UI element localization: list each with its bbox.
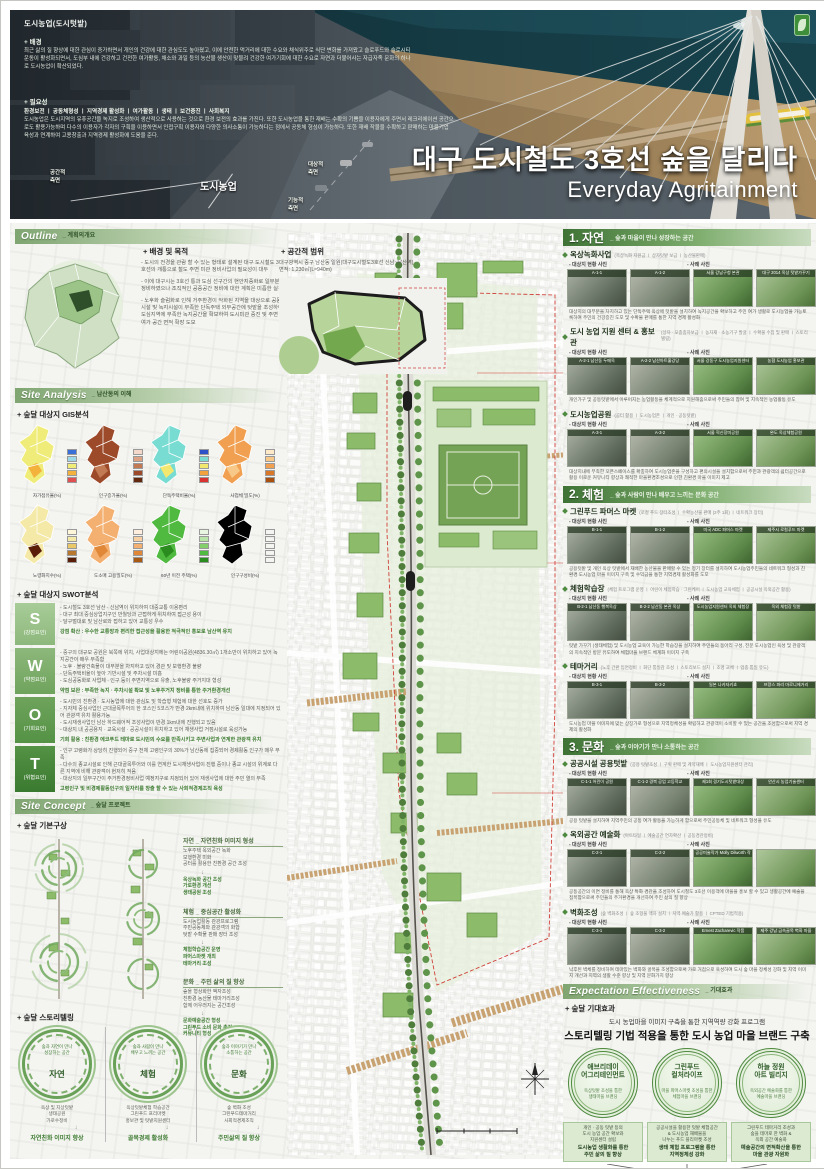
- swot-letter: T: [30, 757, 40, 773]
- program-sub-block: 옥외공간 예술화 (아트타일 ㅣ 예술공간 연차확산 ㅣ 공동경관정비) - 대…: [563, 829, 811, 901]
- site-photos-label: - 대상지 현황 사진: [569, 770, 687, 777]
- photo-thumbnail: 서울 강남구청 본관: [693, 269, 753, 307]
- swot-label: + 숲달 대상지 SWOT분석: [17, 589, 281, 600]
- concept-text-blocks: 자연 _ 자연친화 이미지 형성 노후주택 옥외공간 녹화 보행환경 미화 공터…: [183, 836, 283, 1048]
- gis-map-name: 단독주택비율(%): [147, 493, 211, 499]
- storytelling-result: 자연친화 이미지 향상: [15, 1133, 99, 1142]
- sub-keywords: (아트타일 ㅣ 예술공간 연차확산 ㅣ 공동경관정비): [623, 833, 713, 839]
- site-photos-label: - 대상지 현황 사진: [569, 421, 687, 428]
- concept-heading-sub: _ 숲달 프로젝트: [91, 800, 131, 809]
- expectation-line1: 도시 농업마을 이미지 구축을 통한 지역역량 강화 프로그램: [563, 1016, 811, 1026]
- swot-body: - 인구 고령화가 상당히 진행되어 중구 전체 고령인구의 30%가 남산동에…: [55, 746, 281, 792]
- concept-plan-sketch-1: [19, 834, 99, 1004]
- sub-keywords: (상자 · 모종종자보급 ㅣ 농자재 · 소농기구 발굴 ㅣ 수확물 수집 및 …: [661, 330, 811, 342]
- swot-letter-box: T (위협요인): [15, 746, 55, 792]
- expectation-box: 개인 · 공동 텃밭 등의 도시 농업 공간 확보와 지원센터 설립 도시농업 …: [563, 1122, 643, 1162]
- site-photos-label: - 대상지 현황 사진: [569, 349, 687, 356]
- arrow-down-icon: [201, 870, 283, 876]
- expectation-circle-name: 그린푸드 컬처라이프: [658, 1064, 716, 1081]
- scope-block: + 공간적 범위 대구광역시 중구 남산동 일원(대구도시철도3호선 신남~남산…: [279, 246, 457, 379]
- swot-letter-box: W (약점요인): [15, 648, 55, 694]
- expectation-circle-sub: 옥상텃밭 조성을 통한 생태마을 브랜딩: [577, 1088, 629, 1099]
- swot-summary: 강점 확산 : 우수한 교통망과 편리한 접근성을 활용한 적극적인 홍보로 남…: [60, 628, 232, 635]
- hero-necessity-text: 도시농업은 도시지역의 유휴공간을 녹지로 조성하여 생산적으로 사용하는 것으…: [24, 117, 454, 140]
- site-photos-label: - 대상지 현황 사진: [569, 518, 687, 525]
- photo-thumbnail: 미국 ADC 파머스 마켓: [693, 526, 753, 564]
- sub-keywords: (노후 간판 입면정비 ㅣ 화단 통일감 조성 ㅣ 스토리보드 설치 ㅣ 조명 …: [601, 665, 769, 671]
- diamond-bullet-icon: [562, 909, 568, 915]
- case-photos-label: - 사례 사진: [687, 518, 710, 525]
- analysis-heading: Site Analysis: [21, 390, 87, 401]
- section-3-name: 문화: [582, 738, 604, 755]
- gis-map: 인구구성비(%): [213, 503, 277, 579]
- expectation-result: 생태 체험 프로그램을 통한 지역정체성 강화: [650, 1145, 724, 1159]
- swot-korean-label: (약점요인): [24, 676, 47, 683]
- expectation-circle-name: 하늘 정원 아트 빌리지: [742, 1064, 800, 1081]
- swot-letter-box: O (기회요인): [15, 697, 55, 743]
- section-2-tagline: _ 숲과 사람이 만나 배우고 느끼는 문화 공간: [610, 490, 719, 499]
- swot-analysis: S (강점요인) - 도시철도 3호선 남산 · 신남역이 위치하여 대중교통 …: [15, 603, 281, 795]
- diamond-bullet-icon: [562, 832, 568, 838]
- photo-thumbnail: A-2-2 남산아트홀강당: [630, 357, 690, 395]
- concept-block: 자연 _ 자연친화 이미지 형성 노후주택 옥외공간 녹화 보행환경 미화 공터…: [183, 836, 283, 898]
- diamond-bullet-icon: [562, 663, 568, 669]
- storytelling-cell: 숲과 사람이 만나 배우고 느끼는 공간 체험 옥상텃밭체험 학습공간 그린푸드…: [105, 1027, 190, 1142]
- photo-thumbnail: B-1-2: [630, 526, 690, 564]
- sub-title: 도시 농업 지원 센터 & 홍보관: [570, 326, 658, 348]
- expectation-box: 공공시설을 활용한 텃밭 체험공간 & 도시농업 재배물을 나누는 푸드 플리마…: [647, 1122, 727, 1162]
- gis-map: 인구증가율(%): [81, 423, 145, 499]
- sub-keywords: (공터 활용 ㅣ 도시농업존 ㅣ 개인 · 공동텃밭): [614, 413, 696, 419]
- hero-necessity-keywords: 환경보전 ㅣ 공동체형성 ㅣ 지역경제 활성화 ㅣ 여가활동 ㅣ 생태 ㅣ 보건…: [24, 107, 229, 115]
- gis-legend: [133, 449, 143, 484]
- station-marker: [406, 571, 415, 591]
- case-photos-label: - 사례 사진: [687, 673, 710, 680]
- gis-map-grid: 자가점유율(%) 인구증가율(%): [15, 423, 281, 583]
- gis-choropleth-art: [15, 423, 59, 487]
- photo-thumbnail: 일본 나카자키쵸: [693, 681, 753, 719]
- gis-legend: [133, 529, 143, 564]
- expectation-heading: Expectation Effectiveness: [569, 986, 700, 997]
- sub-keywords: (공용 텃밭조성 ㅣ 구획 판매 및 계약재배 ㅣ 도시농업지원센터 관리): [630, 762, 753, 768]
- scope-line2: 면적: 1,230㎡(L≈940m): [279, 267, 457, 274]
- case-photos-label: - 사례 사진: [687, 595, 710, 602]
- hero-overlay-title: 도시농업(도시텃밭): [24, 18, 87, 29]
- site-scope-map: [279, 278, 447, 374]
- concept-diagram-area: 자연 _ 자연친화 이미지 형성 노후주택 옥외공간 녹화 보행환경 미화 공터…: [15, 834, 281, 1006]
- program-sub-block: 도시농업공원 (공터 활용 ㅣ 도시농업존 ㅣ 개인 · 공동텃밭) - 대상지…: [563, 409, 811, 481]
- gis-choropleth-art: [15, 503, 59, 567]
- diagram-center-label: 도시농업: [200, 178, 237, 193]
- photo-thumbnail: 도시농업지원센터 옥외 체험장: [693, 603, 753, 641]
- photo-row: C-3-1 C-3-2 Ernest Zacharevic 작품 제주 강남 금…: [567, 927, 811, 965]
- program-sub-block: 옥상녹화사업 (옥상녹화 지원금 ㅣ 상자텃밭 보급 ㅣ 농산물판매) - 대상…: [563, 249, 811, 321]
- hero-background-text: 최근 삶의 질 향상에 대한 관심이 증가하면서 개인의 건강에 대한 관심도도…: [24, 48, 414, 71]
- leaf-logo-badge: [794, 14, 810, 36]
- swot-row: W (약점요인) - 중구의 대규모 공원은 북쪽에 위치, 사업대상지에는 어…: [15, 648, 281, 694]
- poster-title: 대구 도시철도 3호선 숲을 달리다 Everyday Agritainment: [412, 138, 798, 203]
- purpose-label: + 배경 및 목적: [143, 246, 283, 257]
- expectation-circle: 그린푸드 컬처라이프 마을 파머스마켓 조성을 통한 체험마을 브랜딩: [652, 1048, 722, 1118]
- gis-legend: [67, 449, 77, 484]
- sub-title: 벽화조성: [570, 907, 598, 918]
- sub-title: 공공시설 공용텃밭: [570, 758, 627, 769]
- photo-row: B-3-1 B-3-2 일본 나카자키쵸 프랑스 파리 마로니에거리: [567, 681, 811, 719]
- storytelling-circle: 숲과 이야기가 만나 소통하는 공간 문화: [204, 1029, 274, 1099]
- section-3-subs: 공공시설 공용텃밭 (공용 텃밭조성 ㅣ 구획 판매 및 계약재배 ㅣ 도시농업…: [563, 758, 811, 979]
- storytelling-tagline: 숲과 이야기가 만나 소통하는 공간: [211, 1044, 267, 1055]
- expectation-cell: 그린푸드 컬처라이프 마을 파머스마켓 조성을 통한 체험마을 브랜딩 공공시설…: [647, 1048, 727, 1162]
- gis-legend: [199, 529, 209, 564]
- purpose-item: - 도시의 전경을 관람 할 수 있는 형태로 설계된 대구 도시철도 3호선의…: [141, 260, 283, 275]
- gis-map: 60년 이전 주택(%): [147, 503, 211, 579]
- gis-choropleth-art: [81, 503, 125, 567]
- diamond-bullet-icon: [562, 335, 568, 341]
- swot-summary: 약점 보완 : 부족한 녹지 · 주차시설 확보 및 노후주거지 정비를 통한 …: [60, 687, 281, 694]
- expectation-circles: 애브리데이 어그리테인먼트 옥상텃밭 조성을 통한 생태마을 브랜딩 개인 · …: [563, 1048, 811, 1162]
- gis-legend: [199, 449, 209, 484]
- gis-choropleth-art: [213, 503, 257, 567]
- section-1-name: 자연: [582, 229, 604, 246]
- program-sub-block: 벽화조성 (숲 벽화조성 ㅣ 숲 조형물 액자 설치 ㅣ 지역 예술가 활용 ㅣ…: [563, 907, 811, 979]
- diamond-bullet-icon: [562, 761, 568, 767]
- photo-thumbnail: C-1-2 경북 공업 고등학교: [630, 778, 690, 816]
- concept-section-header: Site Concept _ 숲달 프로젝트: [15, 799, 281, 814]
- swot-summary: 고령인구 및 비경제활동인구의 일자리를 창출 할 수 있는 사회적경제조직 육…: [60, 785, 281, 792]
- arrow-down-icon: [144, 1125, 190, 1131]
- diamond-bullet-icon: [562, 586, 568, 592]
- section-2-number: 2.: [569, 487, 579, 501]
- expectation-circle: 하늘 정원 아트 빌리지 옥외공간 예술화를 통한 예술마을 브랜딩: [736, 1048, 806, 1118]
- gis-map: 사업체 밀도(%): [213, 423, 277, 499]
- section-2-name: 체험: [582, 486, 604, 503]
- storytelling-name: 체험: [116, 1068, 180, 1080]
- gis-map-name: 자가점유율(%): [15, 493, 79, 499]
- sub-title: 옥상녹화사업: [570, 249, 611, 260]
- gis-map-name: 노령화지수(%): [15, 573, 79, 579]
- right-column: 1. 자연 _ 숲과 마을이 만나 성장하는 공간 옥상녹화사업 (옥상녹화 지…: [563, 229, 811, 1169]
- hero-background-label: + 배경: [24, 36, 42, 46]
- poster-title-english: Everyday Agritainment: [412, 177, 798, 203]
- photo-thumbnail: 서울 혁신장미공원: [693, 429, 753, 467]
- photo-thumbnail: B-3-2: [630, 681, 690, 719]
- swot-row: S (강점요인) - 도시철도 3호선 남산 · 신남역이 위치하여 대중교통 …: [15, 603, 281, 645]
- sub-keywords: (로컬 푸드 장터조성 ㅣ 수확농산물 판매 (2주 1회) ㅣ 네트워크 장터…: [639, 510, 763, 516]
- expectation-box: 그린푸드 테마거리 조성과 숲을 테마로 한 벽화 & 옥외 공간 예술화 예술…: [731, 1122, 811, 1162]
- concept-results: 체험학습공간 운영 파머스마켓 개최 테마거리 조성: [183, 948, 283, 968]
- photo-thumbnail: 완도 옥상체험공원: [756, 429, 816, 467]
- arrow-down-icon: [53, 1125, 99, 1131]
- diamond-bullet-icon: [562, 411, 568, 417]
- photo-thumbnail: 안산시 농업기술센터: [756, 778, 816, 816]
- photo-thumbnail: A-2-1 남산동 두메옥: [567, 357, 627, 395]
- diagram-function-label: 기능적 측면: [288, 196, 303, 212]
- swot-row: O (기회요인) - 도시민의 친환경 · 도시농업에 대한 관심도 및 학습형…: [15, 697, 281, 743]
- section-3-number: 3.: [569, 740, 579, 754]
- photo-row: C-2-1 C-2-2 공공미술작가 Molly Dilworth 작품: [567, 849, 811, 887]
- photo-thumbnail: [756, 849, 816, 887]
- analysis-section-header: Site Analysis _ 남산동의 이해: [15, 388, 281, 403]
- photo-thumbnail: C-2-2: [630, 849, 690, 887]
- expectation-cell: 하늘 정원 아트 빌리지 옥외공간 예술화를 통한 예술마을 브랜딩 그린푸드 …: [731, 1048, 811, 1162]
- gis-map: 도소매 고용밀도(%): [81, 503, 145, 579]
- gis-choropleth-art: [147, 503, 191, 567]
- photo-thumbnail: C-3-1: [567, 927, 627, 965]
- site-photos-label: - 대상지 현황 사진: [569, 261, 687, 268]
- swot-letter-box: S (강점요인): [15, 603, 55, 645]
- concept-label: + 숲달 기본구상: [17, 820, 281, 831]
- case-photos-label: - 사례 사진: [687, 841, 710, 848]
- sports-field: [439, 445, 527, 525]
- sub-caption: 공용텃밭 및 개인 옥상 텃밭에서 재배한 농산물을 판매할 수 있는 정기 장…: [569, 566, 809, 578]
- swot-letter: S: [30, 612, 41, 628]
- section-2-header: 2. 체험 _ 숲과 사람이 만나 배우고 느끼는 문화 공간: [563, 486, 811, 503]
- program-sub-block: 그린푸드 파머스 마켓 (로컬 푸드 장터조성 ㅣ 수확농산물 판매 (2주 1…: [563, 506, 811, 578]
- sub-keywords: (체험 프로그램 운영 ㅣ 어린이 체험학습 · 그린케어 ㅣ 도시농업 교육체…: [608, 587, 791, 593]
- expectation-result: 예술공간의 면적확산을 통한 마을 관광 자원화: [734, 1145, 808, 1159]
- storytelling-cell: 숲과 자연이 만나 성장하는 공간 자연 옥상 및 지상텃밭 생태공원 가로수정…: [15, 1027, 99, 1142]
- storytelling-circles: 숲과 자연이 만나 성장하는 공간 자연 옥상 및 지상텃밭 생태공원 가로수정…: [15, 1027, 281, 1142]
- case-photos-label: - 사례 사진: [687, 919, 710, 926]
- gis-map: 자가점유율(%): [15, 423, 79, 499]
- swot-letter: W: [27, 659, 42, 675]
- swot-summary: 기회 활용 : 친환경 에코푸드 테마로 도시민의 수요를 만족시키고 주변사업…: [60, 736, 281, 743]
- storytelling-result: 골목경제 활성화: [106, 1133, 190, 1142]
- sub-caption: 텃밭 가꾸기 (생태체험) 및 도시농업 교육이 가능한 학습장을 설치하여 주…: [569, 643, 809, 655]
- swot-korean-label: (위협요인): [24, 774, 47, 781]
- swot-korean-label: (기회요인): [24, 725, 47, 732]
- site-photos-label: - 대상지 현황 사진: [569, 919, 687, 926]
- photo-thumbnail: B-3-1: [567, 681, 627, 719]
- outline-content: + 배경 및 목적 - 도시의 전경을 관람 할 수 있는 형태로 설계된 대구…: [15, 246, 281, 384]
- convergence-lines: [597, 1164, 777, 1169]
- sub-title: 그린푸드 파머스 마켓: [570, 506, 636, 517]
- photo-row: A-3-1 A-3-2 서울 혁신장미공원 완도 옥상체험공원: [567, 429, 811, 467]
- program-sub-block: 체험학습장 (체험 프로그램 운영 ㅣ 어린이 체험학습 · 그린케어 ㅣ 도시…: [563, 583, 811, 655]
- gis-choropleth-art: [81, 423, 125, 487]
- storytelling-circle: 숲과 자연이 만나 성장하는 공간 자연: [22, 1029, 92, 1099]
- swot-body: - 도시민의 친환경 · 도시농업에 대한 관심도 및 학습형 체험에 대한 선…: [55, 697, 281, 743]
- sub-title: 테마거리: [570, 661, 598, 672]
- photo-thumbnail: A-1-2: [630, 269, 690, 307]
- hero-necessity-label: + 필요성: [24, 96, 48, 106]
- photo-thumbnail: C-3-2: [630, 927, 690, 965]
- expectation-circle-sub: 마을 파머스마켓 조성을 통한 체험마을 브랜딩: [661, 1088, 713, 1099]
- sub-keywords: (숲 벽화조성 ㅣ 숲 조형물 액자 설치 ㅣ 지역 예술가 활용 ㅣ CPTE…: [601, 911, 744, 917]
- gis-map-name: 인구구성비(%): [213, 573, 277, 579]
- photo-thumbnail: 제주 강남 금속골목 벽화 마을: [756, 927, 816, 965]
- photo-thumbnail: 제1회 경기도시텃밭대상: [693, 778, 753, 816]
- photo-thumbnail: A-3-1: [567, 429, 627, 467]
- section-1-number: 1.: [569, 231, 579, 245]
- sub-caption: 공용 텃밭을 설치하여 지역주민의 공동 여가 활동을 가능하게 함으로써 주민…: [569, 818, 809, 824]
- storytelling-tagline: 숲과 자연이 만나 성장하는 공간: [29, 1044, 85, 1055]
- arrow-down-icon: [201, 940, 283, 946]
- photo-thumbnail: 농협 도시농업 홍보관: [756, 357, 816, 395]
- poster-title-korean: 대구 도시철도 3호선 숲을 달리다: [412, 138, 798, 177]
- site-photos-label: - 대상지 현황 사진: [569, 841, 687, 848]
- sub-caption: 대상지내에 부족한 오픈스페이스를 확충하여 도시농업존을 구성하고 편의시설을…: [569, 469, 809, 481]
- photo-thumbnail: 프랑스 파리 마로니에거리: [756, 681, 816, 719]
- diagram-target-label: 대상적 측면: [308, 160, 323, 176]
- daegu-districts-map: [15, 254, 137, 372]
- program-sub-block: 테마거리 (노후 간판 입면정비 ㅣ 화단 통일감 조성 ㅣ 스토리보드 설치 …: [563, 661, 811, 733]
- arrow-down-icon: [235, 1125, 281, 1131]
- storytelling-result: 주민삶의 질 향상: [197, 1133, 281, 1142]
- photo-row: B-1-1 B-1-2 미국 ADC 파머스 마켓 제주시 로컬푸드 마켓: [567, 526, 811, 564]
- photo-thumbnail: 대구 2014 옥상 텃밭가꾸기: [756, 269, 816, 307]
- scope-label: + 공간적 범위: [281, 246, 457, 257]
- concept-title: 자연 _ 자연친화 이미지 형성: [183, 836, 283, 847]
- sub-caption: 공동공간의 이면 정비를 통해 옥상 특화 경관을 조성하여 도시철도 3호선 …: [569, 889, 809, 901]
- expectation-section-header: Expectation Effectiveness _ 기대효과: [563, 984, 811, 999]
- swot-korean-label: (강점요인): [24, 629, 47, 636]
- section-3-header: 3. 문화 _ 숲과 이야기가 만나 소통하는 공간: [563, 738, 811, 755]
- sub-caption: 대상지의 대부분을 차지하고 있는 단독주택 옥상에 텃밭을 설치하여 녹지공간…: [569, 309, 809, 321]
- storytelling-circle: 숲과 사람이 만나 배우고 느끼는 공간 체험: [113, 1029, 183, 1099]
- expectation-cell: 애브리데이 어그리테인먼트 옥상텃밭 조성을 통한 생태마을 브랜딩 개인 · …: [563, 1048, 643, 1162]
- photo-thumbnail: 공공미술작가 Molly Dilworth 작품: [693, 849, 753, 887]
- gis-label: + 숲달 대상지 GIS분석: [17, 409, 281, 420]
- section-1-header: 1. 자연 _ 숲과 마을이 만나 성장하는 공간: [563, 229, 811, 246]
- section-3-tagline: _ 숲과 이야기가 만나 소통하는 공간: [610, 742, 699, 751]
- photo-row: B-2-1 남산동 행복옥상 B-2-2 남산동 본관 옥상 도시농업지원센터 …: [567, 603, 811, 641]
- swot-row: T (위협요인) - 인구 고령화가 상당히 진행되어 중구 전체 고령인구의 …: [15, 746, 281, 792]
- gis-map-name: 사업체 밀도(%): [213, 493, 277, 499]
- gis-choropleth-art: [213, 423, 257, 487]
- storytelling-name: 자연: [25, 1068, 89, 1080]
- gis-legend: [67, 529, 77, 564]
- purpose-item: - 노후화 슬럼화로 인해 거주환경이 악화된 지역을 대상으로 공동시설 및 …: [141, 298, 283, 328]
- left-column: Outline _ 계획의개요 + 배경 및 목적 - 도시의 전경을 관람 할…: [15, 229, 281, 1142]
- analysis-heading-sub: _ 남산동의 이해: [92, 389, 132, 398]
- sub-keywords: (옥상녹화 지원금 ㅣ 상자텃밭 보급 ㅣ 농산물판매): [614, 253, 705, 259]
- photo-thumbnail: C-1-1 어린이 공원: [567, 778, 627, 816]
- site-photos-label: - 대상지 현황 사진: [569, 595, 687, 602]
- sub-title: 체험학습장: [570, 583, 605, 594]
- expectation-detail: 개인 · 공동 텃밭 등의 도시 농업 공간 확보와 지원센터 설립: [566, 1125, 640, 1143]
- gis-map-name: 60년 이전 주택(%): [147, 573, 211, 579]
- storytelling-tagline: 숲과 사람이 만나 배우고 느끼는 공간: [120, 1044, 176, 1055]
- gis-legend: [265, 529, 275, 564]
- gis-map: 단독주택비율(%): [147, 423, 211, 499]
- program-sub-block: 도시 농업 지원 센터 & 홍보관 (상자 · 모종종자보급 ㅣ 농자재 · 소…: [563, 326, 811, 403]
- sub-caption: 낙후된 벽체를 정비하여 테마있는 벽화와 골목을 조성함으로써 가로 거점으로…: [569, 967, 809, 979]
- sub-title: 도시농업공원: [570, 409, 611, 420]
- expectation-heading-sub: _ 기대효과: [705, 985, 732, 994]
- poster-board: 도시농업(도시텃밭) + 배경 최근 삶의 질 향상에 대한 관심이 증가하면서…: [0, 0, 824, 1169]
- expectation-detail: 그린푸드 테마거리 조성과 숲을 테마로 한 벽화 & 옥외 공간 예술화: [734, 1125, 808, 1143]
- photo-row: C-1-1 어린이 공원 C-1-2 경북 공업 고등학교 제1회 경기도시텃밭…: [567, 778, 811, 816]
- site-photos-label: - 대상지 현황 사진: [569, 673, 687, 680]
- gis-map-name: 도소매 고용밀도(%): [81, 573, 145, 579]
- gis-choropleth-art: [147, 423, 191, 487]
- gis-map: 노령화지수(%): [15, 503, 79, 579]
- photo-row: A-2-1 남산동 두메옥 A-2-2 남산아트홀강당 서울 강동구 도시농업지…: [567, 357, 811, 395]
- swot-body: - 도시철도 3호선 남산 · 신남역이 위치하여 대중교통 이용편리 - 대구…: [55, 603, 232, 645]
- concept-title: 체험 _ 중심공간 활성화: [183, 907, 283, 918]
- sub-caption: 도시농업 마을 이미지에 맞는 상징가로 형성으로 지역정체성을 확립하고 관광…: [569, 721, 809, 733]
- photo-thumbnail: 제주시 로컬푸드 마켓: [756, 526, 816, 564]
- outline-heading: Outline: [21, 231, 58, 242]
- concept-items: 도시농업활동 관광프로그램 주민공동체와 관광객의 화합 텃밭 수확물 판매 장…: [183, 920, 283, 940]
- storytelling-items: 옥상텃밭체험 학습공간 그린푸드 프리마켓 홍보관 및 텃밭지원센터: [106, 1105, 190, 1124]
- storytelling-items: 숲 벽화 조성 그린푸드테마거리 사회적경제조직: [197, 1105, 281, 1124]
- photo-thumbnail: B-2-1 남산동 행복옥상: [567, 603, 627, 641]
- case-photos-label: - 사례 사진: [687, 261, 710, 268]
- photo-thumbnail: C-2-1: [567, 849, 627, 887]
- urban-farming-diagram: 공간적 측면 도시농업 대상적 측면 기능적 측면: [50, 160, 410, 212]
- gis-legend: [265, 449, 275, 484]
- concept-plan-sketch-2: [103, 834, 183, 1004]
- photo-thumbnail: 옥외 체험장 텃밭: [756, 603, 816, 641]
- photo-thumbnail: A-3-2: [630, 429, 690, 467]
- case-photos-label: - 사례 사진: [687, 421, 710, 428]
- diamond-bullet-icon: [562, 509, 568, 515]
- section-1-tagline: _ 숲과 마을이 만나 성장하는 공간: [610, 233, 693, 242]
- station-marker: [403, 391, 412, 411]
- concept-results: 옥상녹화 공간 조성 가로환경 개선 생태공원 조성: [183, 878, 283, 898]
- storytelling-items: 옥상 및 지상텃밭 생태공원 가로수정비: [15, 1105, 99, 1124]
- expectation-label: + 숲달 기대효과: [565, 1003, 811, 1014]
- hero-photo: 도시농업(도시텃밭) + 배경 최근 삶의 질 향상에 대한 관심이 증가하면서…: [10, 10, 816, 219]
- case-photos-label: - 사례 사진: [687, 349, 710, 356]
- expectation-result: 도시농업 생활화를 통한 주민 삶의 질 향상: [566, 1145, 640, 1159]
- concept-items: 노후주택 옥외공간 녹화 보행환경 미화 공터를 활용한 친환경 공간 조성: [183, 849, 283, 869]
- expectation-line2: 스토리텔링 기법 적용을 통한 도시 농업 마을 브랜드 구축: [563, 1028, 811, 1043]
- sub-caption: 개인가구 및 공동텃밭에서 이루어지는 농업활동을 체계적으로 지원해줌으로써 …: [569, 397, 809, 403]
- expectation-detail: 공공시설을 활용한 텃밭 체험공간 & 도시농업 재배물을 나누는 푸드 플리마…: [650, 1125, 724, 1143]
- photo-row: A-1-1 A-1-2 서울 강남구청 본관 대구 2014 옥상 텃밭가꾸기: [567, 269, 811, 307]
- concept-block: 체험 _ 중심공간 활성화 도시농업활동 관광프로그램 주민공동체와 관광객의 …: [183, 907, 283, 969]
- concept-items: 숲을 형상화한 액자조성 친환경 농산물 테마거리조성 함께 어우러지는 공간조…: [183, 990, 283, 1010]
- section-1-subs: 옥상녹화사업 (옥상녹화 지원금 ㅣ 상자텃밭 보급 ㅣ 농산물판매) - 대상…: [563, 249, 811, 481]
- swot-letter: O: [29, 708, 41, 724]
- photo-thumbnail: A-1-1: [567, 269, 627, 307]
- expectation-circle: 애브리데이 어그리테인먼트 옥상텃밭 조성을 통한 생태마을 브랜딩: [568, 1048, 638, 1118]
- section-2-subs: 그린푸드 파머스 마켓 (로컬 푸드 장터조성 ㅣ 수확농산물 판매 (2주 1…: [563, 506, 811, 733]
- storytelling-name: 문화: [207, 1068, 271, 1080]
- photo-thumbnail: Ernest Zacharevic 작품: [693, 927, 753, 965]
- expectation-circle-sub: 옥외공간 예술화를 통한 예술마을 브랜딩: [745, 1088, 797, 1099]
- diamond-bullet-icon: [562, 252, 568, 258]
- swot-body: - 중구의 대규모 공원은 북쪽에 위치, 사업대상지에는 어린이공원(4836…: [55, 648, 281, 694]
- program-sub-block: 공공시설 공용텃밭 (공용 텃밭조성 ㅣ 구획 판매 및 계약재배 ㅣ 도시농업…: [563, 758, 811, 824]
- diagram-spatial-label: 공간적 측면: [50, 168, 65, 184]
- outline-heading-sub: _ 계획의개요: [63, 230, 96, 239]
- photo-thumbnail: B-2-2 남산동 본관 옥상: [630, 603, 690, 641]
- arrow-down-icon: [201, 1011, 283, 1017]
- photo-thumbnail: 서울 강동구 도시농업지원센터: [693, 357, 753, 395]
- case-photos-label: - 사례 사진: [687, 770, 710, 777]
- purpose-item: - 이에 대구시는 3호선 통과 도심 선구간의 현안지중화로 일부분 정비하였…: [141, 279, 283, 294]
- sub-title: 옥외공간 예술화: [570, 829, 620, 840]
- gis-map-name: 인구증가율(%): [81, 493, 145, 499]
- expectation-circle-name: 애브리데이 어그리테인먼트: [574, 1064, 632, 1081]
- outline-section-header: Outline _ 계획의개요: [15, 229, 281, 244]
- photo-thumbnail: B-1-1: [567, 526, 627, 564]
- concept-heading: Site Concept: [21, 801, 86, 812]
- storytelling-cell: 숲과 이야기가 만나 소통하는 공간 문화 숲 벽화 조성 그린푸드테마거리 사…: [196, 1027, 281, 1142]
- concept-title: 문화 _ 주민 삶의 질 향상: [183, 977, 283, 988]
